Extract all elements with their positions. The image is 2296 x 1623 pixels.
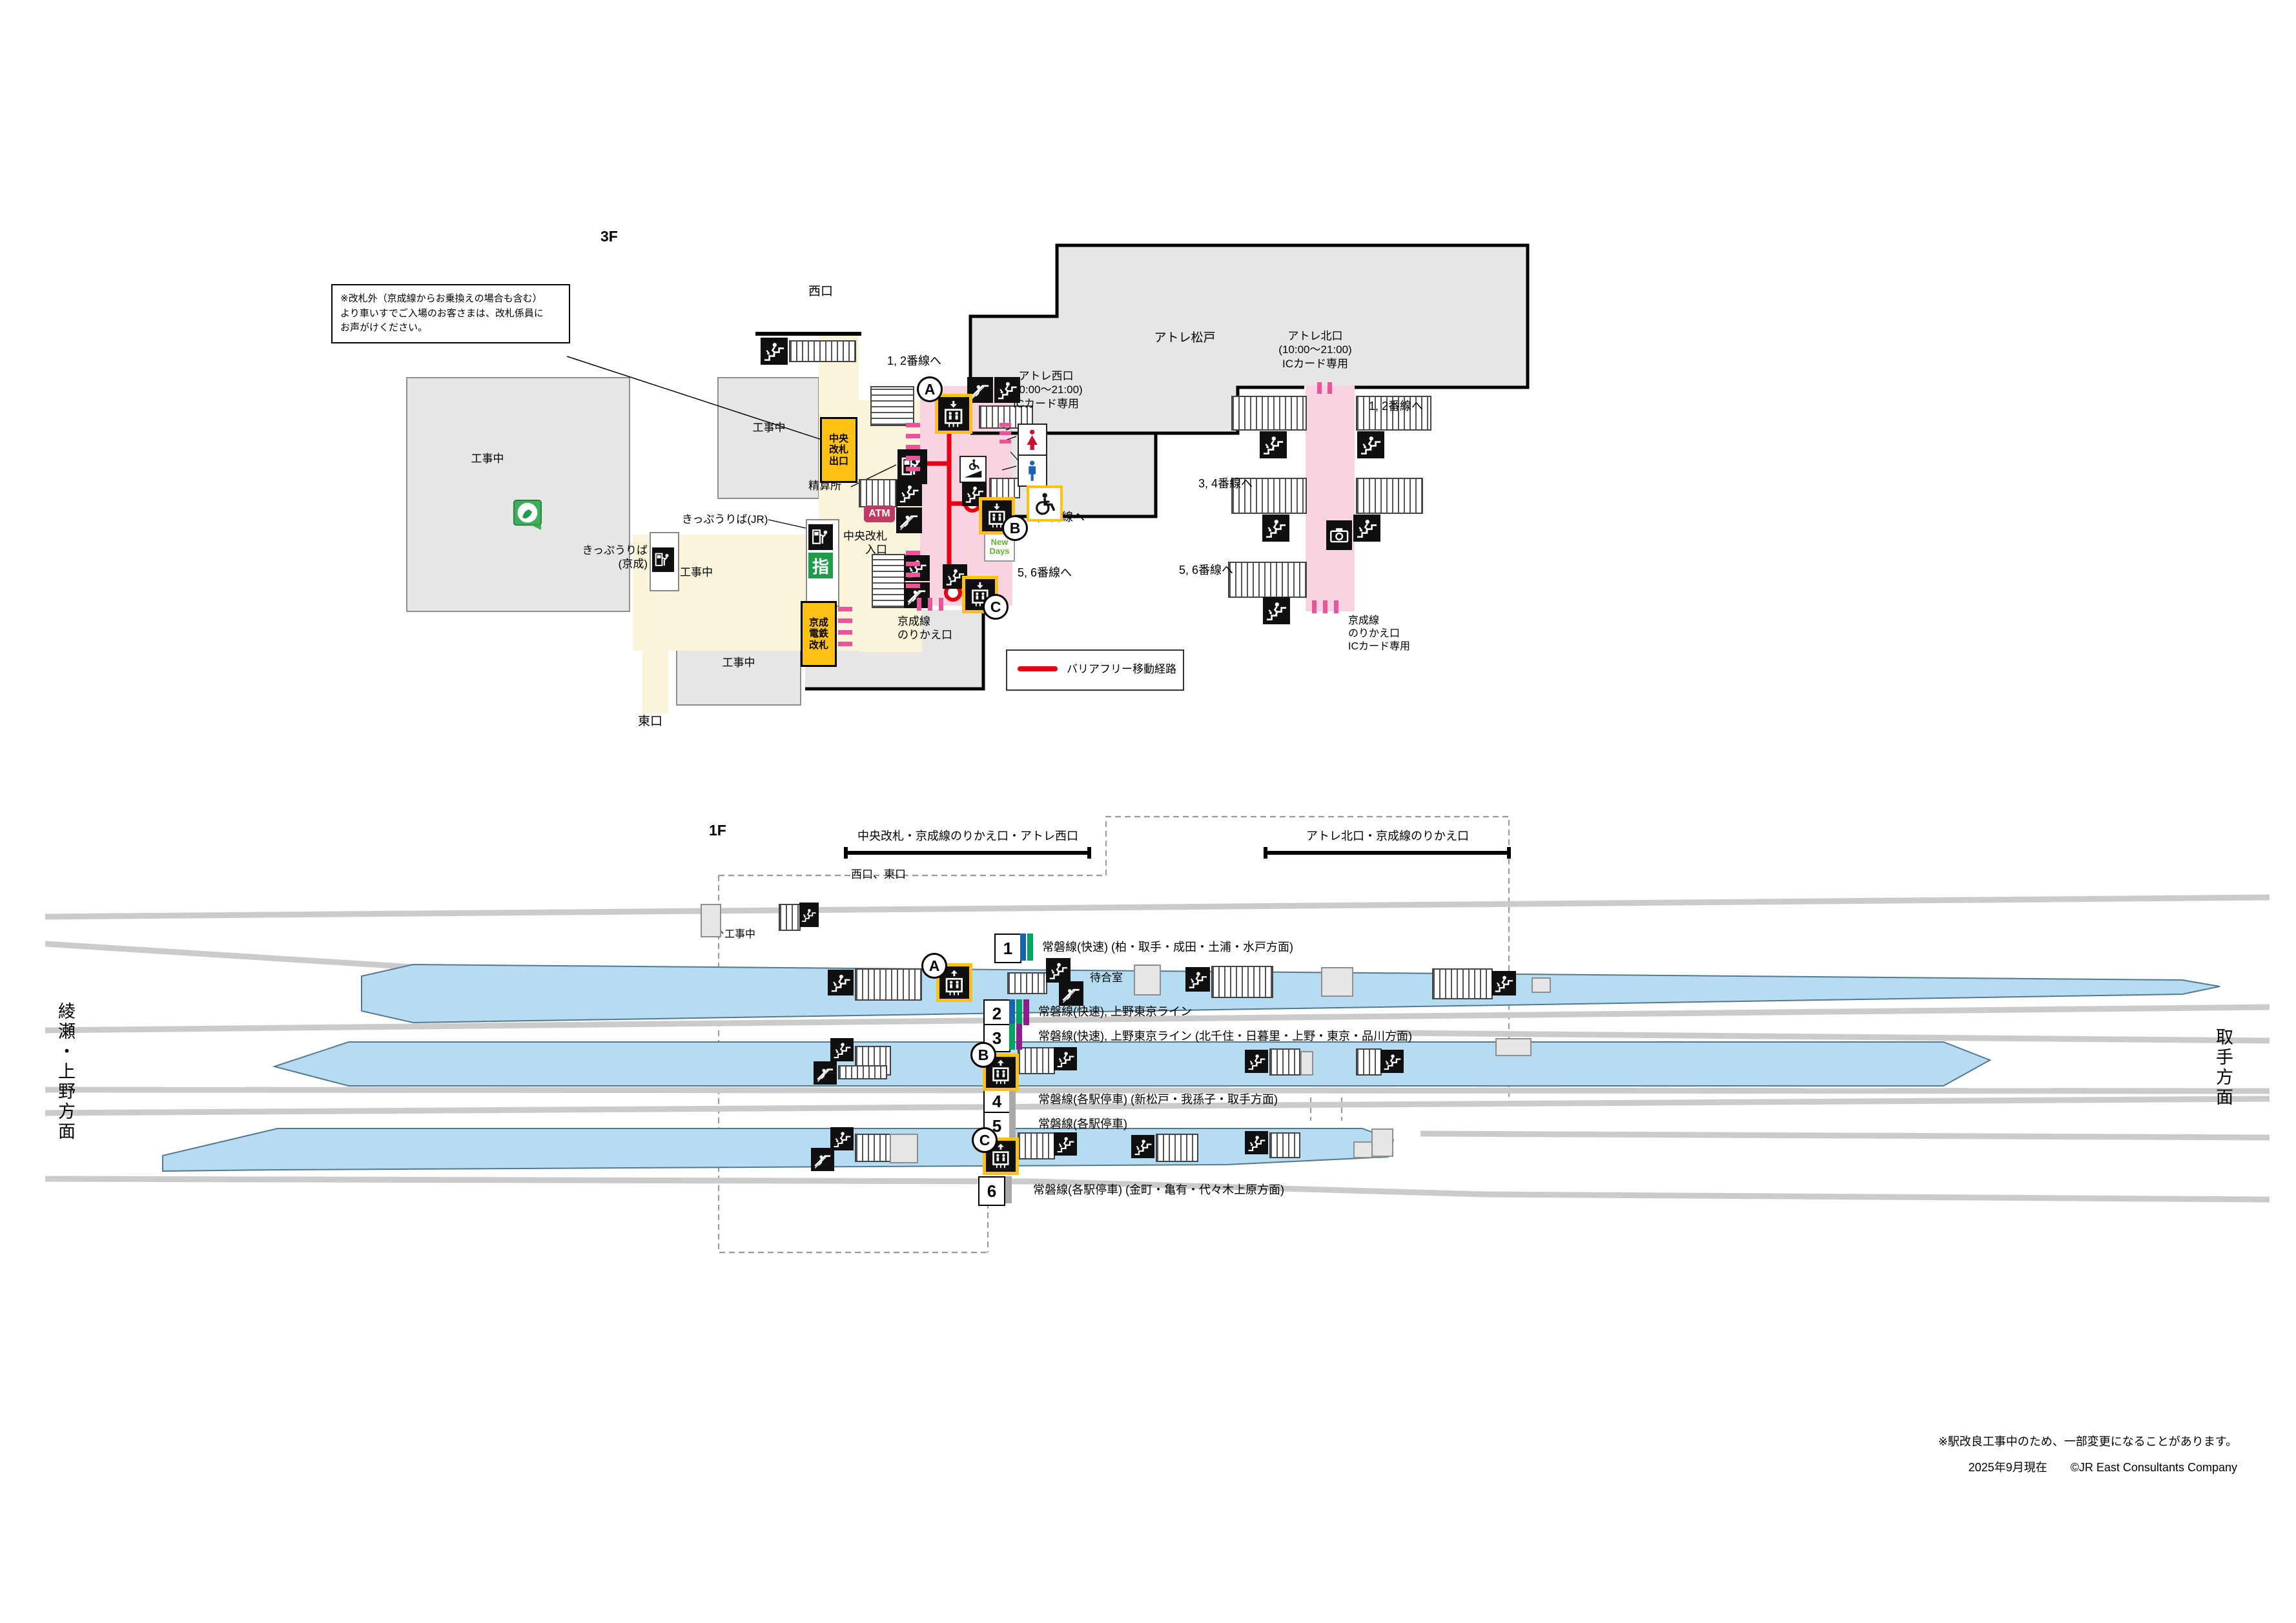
jr-ticket-leader (768, 520, 806, 528)
line-color-stripe (1009, 999, 1015, 1025)
platform-2-label: 常磐線(快速), 上野東京ライン (1038, 1005, 1192, 1019)
stairs-icon-i3-east (1245, 1131, 1268, 1154)
line-color-stripe (1005, 1176, 1012, 1203)
platform-island-5-6 (163, 1128, 1393, 1171)
elevator-b-circle-1f: B (970, 1042, 996, 1068)
f3-east-corridor (642, 649, 668, 713)
construction-label-west: 工事中 (452, 452, 523, 465)
platform-6-label: 常磐線(各駅停車) (金町・亀有・代々木上原方面) (1033, 1183, 1284, 1198)
elevator-a-circle-3f: A (917, 376, 943, 402)
i1-kiosk-box (1321, 967, 1353, 997)
atre-west-gate-tick (999, 440, 1011, 444)
f3-north-corridor (1306, 385, 1355, 611)
platform-4-label: 常磐線(各駅停車) (新松戸・我孫子・取手方面) (1038, 1092, 1278, 1107)
keisei-gate-tick (838, 607, 852, 611)
direction-right-label: 取手方面 (2211, 1028, 2236, 1108)
central-entrance-gate-tick (906, 584, 920, 588)
line-color-stripe (1016, 999, 1022, 1025)
waiting-room-label: 待合室 (1090, 971, 1123, 985)
construction-label-lower: 工事中 (677, 656, 801, 669)
escalator-icon-i3-west (811, 1148, 834, 1171)
f1-entry-stairs-icon (799, 903, 819, 927)
bracket-north-gates (1266, 847, 1509, 859)
line-color-stripe (1009, 1112, 1016, 1138)
stairs-3f-34 (989, 478, 1020, 498)
stairs-icon-north-12l (1260, 431, 1287, 458)
central-entrance-gate-tick (906, 573, 920, 577)
escalator-icon-i2-west (814, 1061, 837, 1085)
legend-label: バリアフリー移動経路 (1067, 662, 1176, 676)
stairs-icon-concourse-w (896, 480, 922, 506)
keisei-ic-gate-tick (1312, 600, 1317, 613)
f1-construction-label: 工事中 (724, 928, 755, 941)
atre-matsudo-label: アトレ松戸 (1130, 331, 1240, 346)
platform-number-6: 6 (978, 1176, 1005, 1206)
stairs-concourse-sw (872, 554, 905, 608)
central-exit-gate-tick (906, 423, 920, 427)
accessible-toilet-icon (1027, 485, 1063, 522)
jr-ticket-office-label: きっぷうりば(JR) (682, 513, 768, 526)
central-exit-gate-tick (906, 434, 920, 438)
keisei-transfer-gate-tick (939, 598, 943, 611)
atre-west-gate-tick (999, 423, 1011, 427)
line-color-stripe (1016, 1024, 1022, 1050)
escalator-icon-concourse-w (896, 507, 922, 533)
keisei-gate-tick (838, 642, 852, 646)
floor1-title: 1F (709, 821, 726, 840)
station-map-page: { "meta": {"floor3": "3F", "floor1": "1F… (0, 0, 2296, 1623)
stairs-concourse-w (859, 479, 897, 507)
stairs-i1-east (1432, 968, 1493, 999)
ticket-machine-icon-keisei (652, 547, 674, 572)
stairs-north-56-left (1228, 562, 1307, 598)
waiting-room-box (1134, 965, 1161, 995)
map-shapes (0, 0, 2296, 1623)
platform-1-label: 常磐線(快速) (柏・取手・成田・土浦・水戸方面) (1042, 940, 1293, 955)
stairs-icon-i2-mid (1054, 1047, 1077, 1070)
stairs-i3-east (1269, 1132, 1300, 1158)
stairs-north-34-right (1356, 478, 1423, 514)
stairs-icon-i2-west (830, 1038, 854, 1061)
stairs-icon-i1-west (828, 970, 854, 995)
footer-credit: 2025年9月現在 ©JR East Consultants Company (1582, 1460, 2237, 1475)
stairs-icon-i1-mid2 (1185, 967, 1210, 992)
legend-route-swatch (1018, 666, 1058, 671)
direction-left-label: 綾瀬・上野方面 (53, 1002, 78, 1142)
toilet-men-icon (1018, 454, 1047, 487)
stairs-icon-north-34r (1353, 515, 1380, 542)
keisei-railway-gate-sign: 京成 電鉄 改札 (801, 601, 837, 667)
wheelchair-note: ※改札外（京成線からお乗換えの場合も含む） より車いすでご入場のお客さまは、改札… (331, 284, 570, 343)
stairs-north-12-left (1231, 396, 1307, 431)
to-tracks12-label-north: 1, 2番線へ (1369, 399, 1423, 414)
central-exit-gate-tick (906, 467, 920, 471)
i2-end-box (1495, 1038, 1532, 1056)
stairs-i3-mid1 (1018, 1132, 1055, 1159)
elevator-c-circle-1f: C (972, 1127, 998, 1153)
ticket-office-icon (513, 498, 542, 532)
stairs-icon-west-exit (761, 338, 788, 365)
line-color-stripe (1009, 1024, 1015, 1050)
elevator-c-circle-3f: C (983, 594, 1009, 620)
keisei-ic-gate-tick (1334, 600, 1338, 613)
stairs-i2-east2 (1356, 1048, 1382, 1076)
escalator-icon-i1 (1059, 981, 1083, 1006)
central-gate-exit-sign: 中央 改札 出口 (820, 417, 857, 483)
i3-box-west (890, 1134, 918, 1163)
keisei-ic-gate-tick (1323, 600, 1327, 613)
atre-north-gate-tick (1327, 382, 1332, 394)
platform-island-3-4 (274, 1042, 1990, 1086)
line-color-stripe (1009, 1087, 1016, 1113)
i2-slab (1300, 1051, 1313, 1076)
stairs-i2-east1 (1269, 1048, 1300, 1076)
elevator-a-circle-1f: A (921, 953, 947, 979)
platform-island-1-2 (362, 965, 2220, 1023)
platform-3-label: 常磐線(快速), 上野東京ライン (北千住・日暮里・上野・東京・品川方面) (1038, 1029, 1412, 1044)
gate-guide-center-label: 中央改札・京成線のりかえ口・アトレ西口 (846, 829, 1090, 844)
i1-small-box (1532, 977, 1551, 993)
central-entrance-gate-tick (906, 551, 920, 555)
east-exit-label: 東口 (638, 714, 662, 730)
stairs-i1-west (855, 968, 922, 1001)
stairs-icon-i3-mid2 (1131, 1135, 1154, 1158)
central-exit-gate-tick (906, 456, 920, 460)
west-exit-label: 西口 (808, 284, 833, 300)
f3-west-construction-block (407, 378, 630, 611)
stairs-i1-mid2 (1211, 966, 1273, 998)
west-east-exit-label: 西口、東口 (851, 868, 906, 881)
keisei-transfer-ic-label: 京成線 のりかえ口 ICカード専用 (1348, 615, 1410, 653)
atm-sign: ATM (864, 505, 895, 522)
stairs-i3-west (855, 1134, 891, 1162)
f1-construction-box (701, 904, 721, 937)
to-tracks56-label-north: 5, 6番線へ (1156, 563, 1233, 578)
line-color-stripe (1020, 934, 1026, 961)
stairs-icon-i3-mid1 (1054, 1132, 1077, 1156)
stairs-icon-north-34l (1262, 515, 1289, 542)
footer-note: ※駅改良工事中のため、一部変更になることがあります。 (1582, 1434, 2237, 1449)
to-tracks56-label-center: 5, 6番線へ (1018, 566, 1072, 580)
f3-midtop-construction-block (718, 378, 819, 498)
f1-entry-stairs (779, 904, 801, 931)
keisei-gate-tick (838, 618, 852, 623)
stairs-concourse-nw (870, 386, 914, 426)
construction-label-midtop: 工事中 (733, 421, 805, 434)
stairs-icon-i2-east1 (1245, 1050, 1268, 1073)
elevator-b-circle-3f: B (1002, 515, 1028, 541)
stairs-i1-mid1 (1007, 972, 1047, 994)
stairs-icon-i3-west (830, 1127, 854, 1150)
ticket-machine-icon-jr (808, 524, 833, 550)
central-entrance-gate-tick (906, 562, 920, 566)
stairs-icon-i2-east2 (1380, 1050, 1404, 1073)
platform-number-1: 1 (994, 934, 1021, 963)
escalator-i2-west (838, 1065, 887, 1079)
toilet-women-icon (1018, 424, 1047, 456)
keisei-gate-tick (838, 630, 852, 635)
platform-5-label: 常磐線(各駅停車) (1038, 1117, 1127, 1132)
to-tracks12-label-center: 1, 2番線へ (887, 354, 941, 369)
atre-north-label: アトレ北口 (10:00〜21:00) ICカード専用 (1267, 329, 1364, 371)
stairs-west-exit (789, 340, 856, 362)
wheelchair-ramp-icon (959, 456, 987, 483)
stairs-icon-i1-east (1491, 971, 1516, 995)
keisei-transfer-gate-tick (928, 598, 932, 611)
keisei-transfer-gate-tick (917, 598, 921, 611)
keisei-transfer-label: 京成線 のりかえ口 (897, 615, 952, 642)
photo-booth-icon (1326, 520, 1352, 550)
stairs-icon-i1-mid1 (1046, 958, 1071, 983)
to-tracks34-label-north: 3, 4番線へ (1175, 476, 1253, 491)
line-color-stripe (1023, 999, 1029, 1025)
bracket-center-gates (846, 847, 1089, 859)
atre-west-gate-tick (999, 431, 1011, 435)
stairs-icon-north-56l (1263, 597, 1290, 624)
atre-north-gate-tick (1317, 382, 1322, 394)
reserved-seat-machine-sign: 指 (808, 553, 833, 578)
i3-end-box2 (1371, 1128, 1393, 1157)
gate-guide-north-label: アトレ北口・京成線のりかえ口 (1266, 829, 1510, 844)
stairs-icon-concourse-s (904, 555, 930, 581)
stairs-icon-north-12r (1357, 431, 1384, 458)
central-exit-gate-tick (906, 445, 920, 449)
line-color-stripe (1027, 934, 1033, 961)
keisei-ticket-office-label: きっぷうりば (京成) (552, 544, 648, 571)
elevator-a-icon-3f (935, 394, 972, 434)
floor3-title: 3F (600, 227, 618, 246)
stairs-icon-3f-12 (994, 377, 1020, 403)
stairs-i2-mid (1018, 1047, 1055, 1074)
stairs-i3-mid2 (1156, 1134, 1198, 1162)
